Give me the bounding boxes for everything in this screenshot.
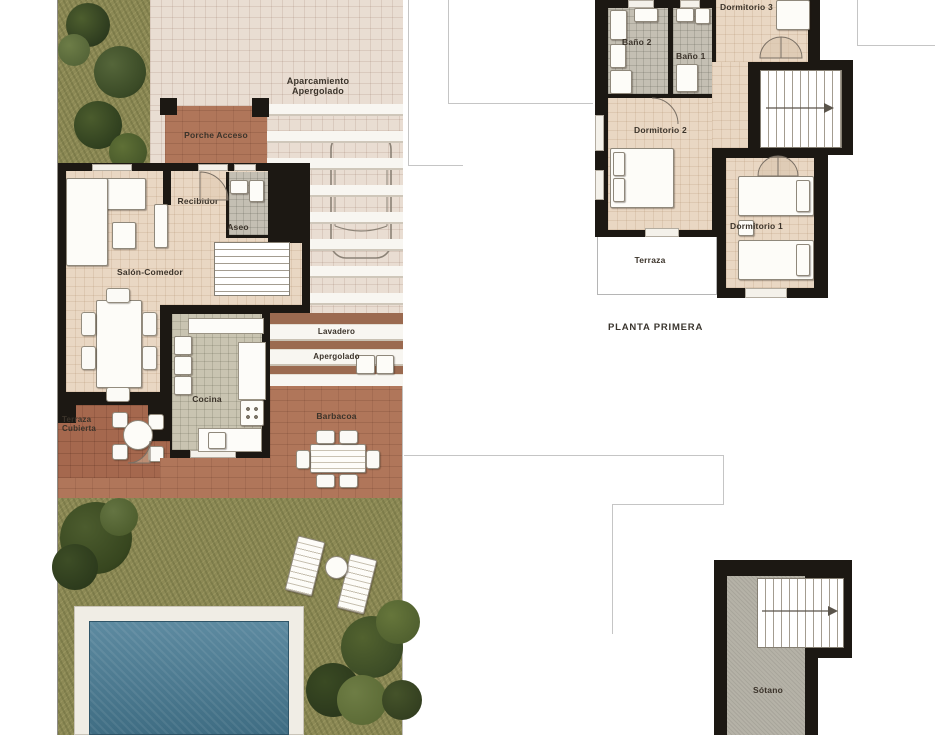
shower xyxy=(610,10,627,40)
toilet xyxy=(249,180,264,202)
pillow xyxy=(613,178,625,202)
sofa xyxy=(66,178,108,266)
kitchen-unit xyxy=(174,356,192,375)
window xyxy=(234,164,256,171)
outdoor-table xyxy=(310,444,366,473)
chair xyxy=(142,312,157,336)
plan-title: PLANTA PRIMERA xyxy=(608,322,703,333)
bush xyxy=(58,34,90,66)
kitchen-sink xyxy=(208,432,226,449)
porch-post xyxy=(252,98,269,117)
toilet xyxy=(695,8,710,24)
wall-mass xyxy=(268,171,302,243)
window xyxy=(680,0,700,8)
room-label-sotano: Sótano xyxy=(746,686,790,696)
chair xyxy=(81,312,96,336)
room-label-dormitorio1: Dormitorio 1 xyxy=(730,222,783,232)
first-floor-stairs xyxy=(760,70,842,148)
terrace-door-gap xyxy=(645,228,679,237)
sink xyxy=(230,180,248,194)
room-label-apergolado: Apergolado xyxy=(270,352,403,361)
room-label-salon: Salón-Comedor xyxy=(100,268,200,278)
pillow xyxy=(796,180,810,212)
chair xyxy=(366,450,380,469)
room-label-cocina: Cocina xyxy=(177,395,237,405)
room-label-dormitorio3: Dormitorio 3 xyxy=(720,3,773,13)
pillow xyxy=(796,244,810,276)
shower xyxy=(676,64,698,92)
sideboard xyxy=(154,204,168,248)
terraza-floor xyxy=(597,237,717,295)
chair xyxy=(112,444,128,460)
room-label-bano1: Baño 1 xyxy=(676,52,706,62)
barbacoa-area xyxy=(270,386,402,500)
window xyxy=(92,164,132,171)
room-label-porche: Porche Acceso xyxy=(168,131,264,141)
sink xyxy=(634,8,658,22)
room-label-recibidor: Recibidor xyxy=(170,197,226,207)
corridor-floor xyxy=(712,62,748,148)
survey-line xyxy=(857,0,858,46)
window xyxy=(595,115,604,151)
room-label-bano2: Baño 2 xyxy=(622,38,652,48)
bush xyxy=(94,46,146,98)
tree xyxy=(337,675,387,725)
pool-water xyxy=(89,621,289,735)
bed-single xyxy=(776,0,810,30)
cooktop xyxy=(240,400,264,426)
sink xyxy=(676,8,694,22)
tree xyxy=(382,680,422,720)
chair xyxy=(142,346,157,370)
dining-table xyxy=(96,300,142,388)
floor-plan-sheet: Aparcamiento Apergolado Porche Acceso Re… xyxy=(0,0,935,735)
chair xyxy=(339,474,358,488)
survey-line xyxy=(612,504,613,634)
basement-stairs xyxy=(757,578,844,648)
terrace-path xyxy=(58,478,170,500)
survey-line xyxy=(404,455,724,456)
room-label-barbacoa: Barbacoa xyxy=(270,412,403,422)
chair xyxy=(106,387,130,402)
chair xyxy=(106,288,130,303)
fridge xyxy=(174,336,192,355)
tree xyxy=(52,544,98,590)
survey-line xyxy=(448,0,449,104)
room-label-lavadero: Lavadero xyxy=(270,327,403,336)
survey-line xyxy=(408,0,409,166)
room-label-terraza: Terraza xyxy=(605,256,695,266)
survey-line xyxy=(448,103,593,104)
room-label-dormitorio2: Dormitorio 2 xyxy=(634,126,687,136)
room-label-terraza-cubierta: Terraza Cubierta xyxy=(62,415,112,433)
chair xyxy=(296,450,310,469)
pillow xyxy=(613,152,625,176)
porch-post xyxy=(160,98,177,115)
room-label-aseo: Aseo xyxy=(216,223,260,233)
room-label-aparcamiento: Aparcamiento Apergolado xyxy=(258,76,378,97)
window xyxy=(745,288,787,298)
ground-floor-stairs xyxy=(214,242,290,296)
chair xyxy=(339,430,358,444)
chair xyxy=(81,346,96,370)
survey-line xyxy=(857,45,935,46)
window xyxy=(595,170,604,200)
kitchen-island xyxy=(238,342,266,400)
entry-door-gap xyxy=(198,164,228,171)
survey-line xyxy=(408,165,463,166)
lounge-table xyxy=(325,556,348,579)
chair xyxy=(316,430,335,444)
tree xyxy=(100,498,138,536)
window xyxy=(628,0,654,8)
tree xyxy=(376,600,420,644)
survey-line xyxy=(612,504,724,505)
chair xyxy=(316,474,335,488)
terrace-band xyxy=(160,458,270,500)
coffee-table xyxy=(112,222,136,249)
kitchen-counter xyxy=(188,318,264,334)
round-table xyxy=(123,420,153,450)
kitchen-unit xyxy=(174,376,192,395)
bathtub xyxy=(610,70,632,94)
survey-line xyxy=(723,455,724,505)
